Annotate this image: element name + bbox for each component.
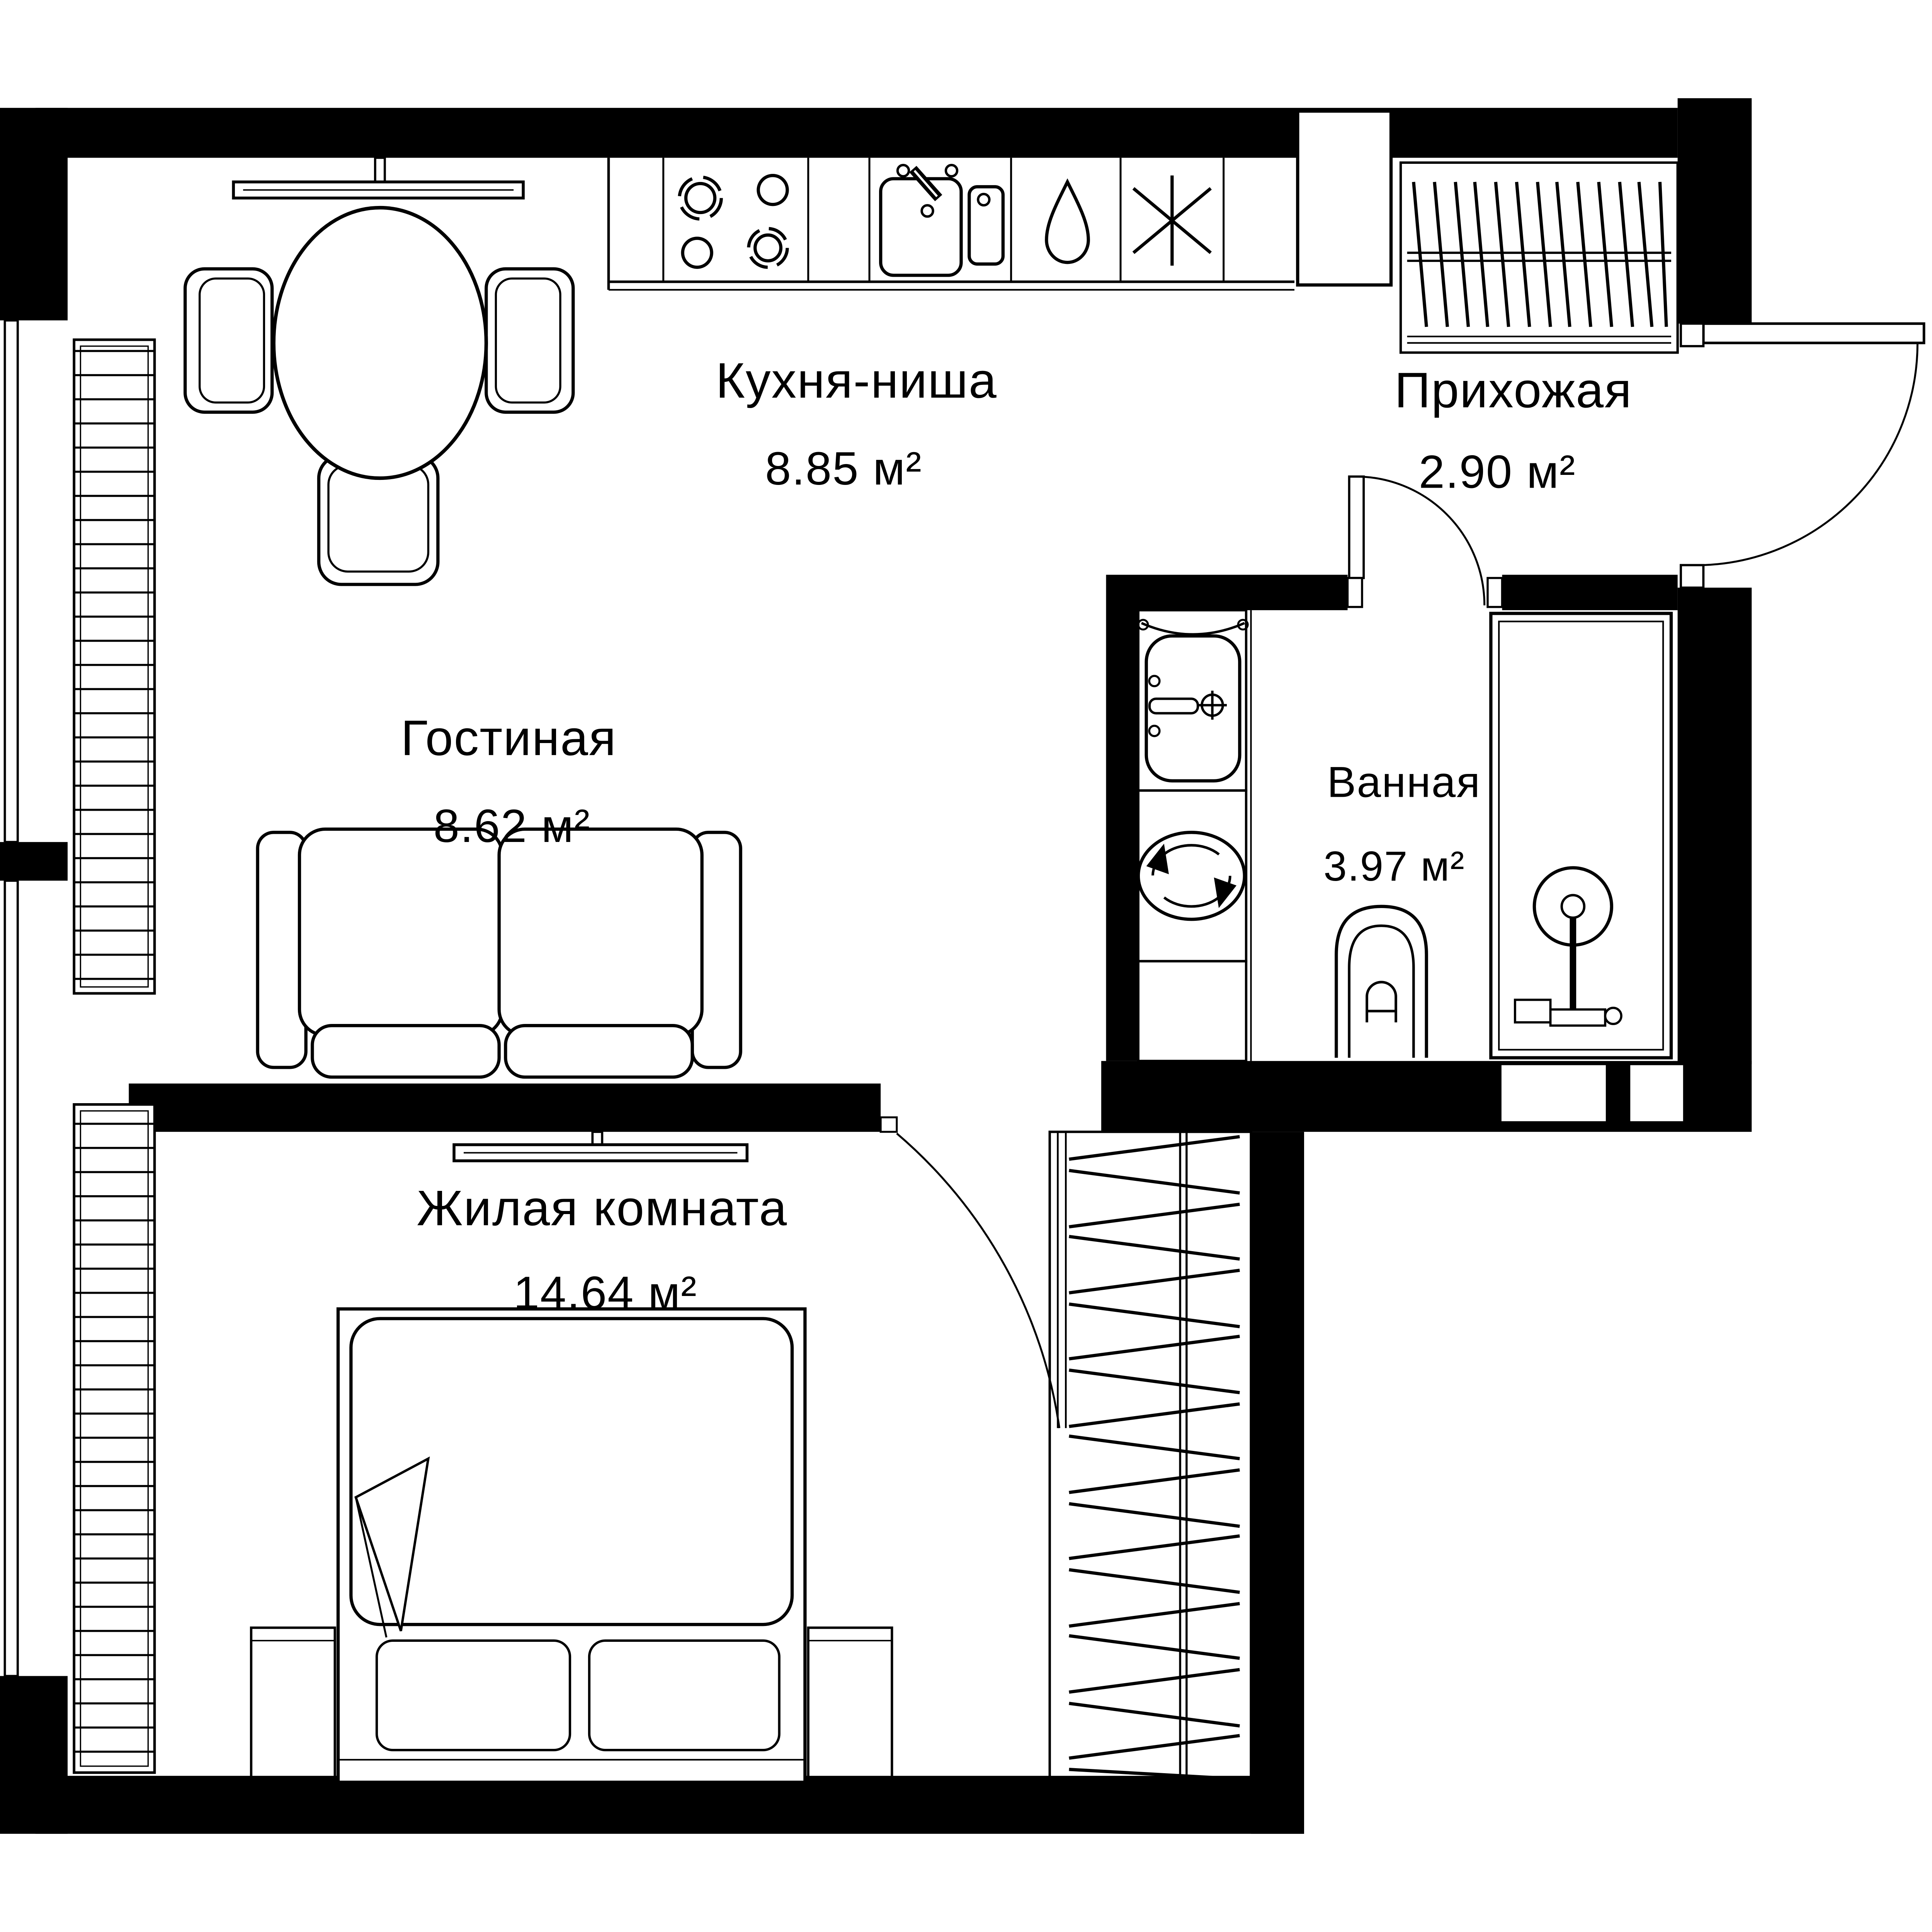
toilet-icon bbox=[1336, 906, 1426, 1058]
wall-left-middle bbox=[0, 842, 68, 881]
wall-bedroom-right bbox=[1251, 1132, 1304, 1834]
entry-door-leaf bbox=[1703, 324, 1924, 343]
hallway-label: Прихожая bbox=[1395, 362, 1632, 418]
wall-bathroom-top-left bbox=[1106, 575, 1348, 611]
floor-plan-canvas: Кухня-ниша 8.85 м² Прихожая 2.90 м² Гост… bbox=[0, 0, 1932, 1932]
bathroom-door-jamb-right bbox=[1488, 578, 1502, 607]
chair-right-icon bbox=[486, 269, 573, 412]
entry-door-jamb-bottom bbox=[1681, 565, 1703, 588]
wall-left-upper bbox=[0, 108, 68, 320]
bathroom-door-leaf bbox=[1349, 476, 1364, 578]
wall-top bbox=[36, 108, 1678, 158]
bedroom-door-jamb bbox=[881, 1117, 897, 1132]
kitchen-label: Кухня-ниша bbox=[716, 353, 997, 408]
radiator-bedroom bbox=[74, 1104, 155, 1772]
wall-living-bedroom bbox=[129, 1083, 881, 1132]
kitchen-area: 8.85 м² bbox=[765, 442, 922, 495]
chair-left-icon bbox=[185, 269, 272, 412]
wall-right-column bbox=[1678, 588, 1752, 1064]
floor-plan: Кухня-ниша 8.85 м² Прихожая 2.90 м² Гост… bbox=[0, 0, 1932, 1932]
bathroom-door-jamb-left bbox=[1348, 578, 1362, 607]
living-area: 8.62 м² bbox=[434, 800, 591, 852]
wall-bottom bbox=[36, 1776, 1304, 1834]
vent-shaft-icon bbox=[1298, 111, 1391, 285]
wall-bathroom-left bbox=[1106, 575, 1138, 1061]
bedroom-label: Жилая комната bbox=[417, 1180, 787, 1236]
bedroom-area: 14.64 м² bbox=[514, 1267, 697, 1319]
bed-icon bbox=[251, 1309, 892, 1782]
living-label: Гостиная bbox=[401, 710, 617, 766]
radiator-living bbox=[74, 340, 155, 993]
wall-bathroom-top-right bbox=[1502, 575, 1678, 611]
bathroom-label: Ванная bbox=[1327, 758, 1481, 806]
hallway-area: 2.90 м² bbox=[1419, 446, 1576, 498]
sofa-icon bbox=[258, 829, 741, 1077]
dining-table-icon bbox=[274, 208, 486, 478]
wall-top-right-block bbox=[1678, 98, 1752, 323]
bathroom-area: 3.97 м² bbox=[1323, 843, 1465, 889]
duct-niche-left bbox=[1500, 1064, 1607, 1122]
entry-door-jamb-top bbox=[1681, 324, 1703, 346]
duct-niche-right bbox=[1629, 1064, 1684, 1122]
